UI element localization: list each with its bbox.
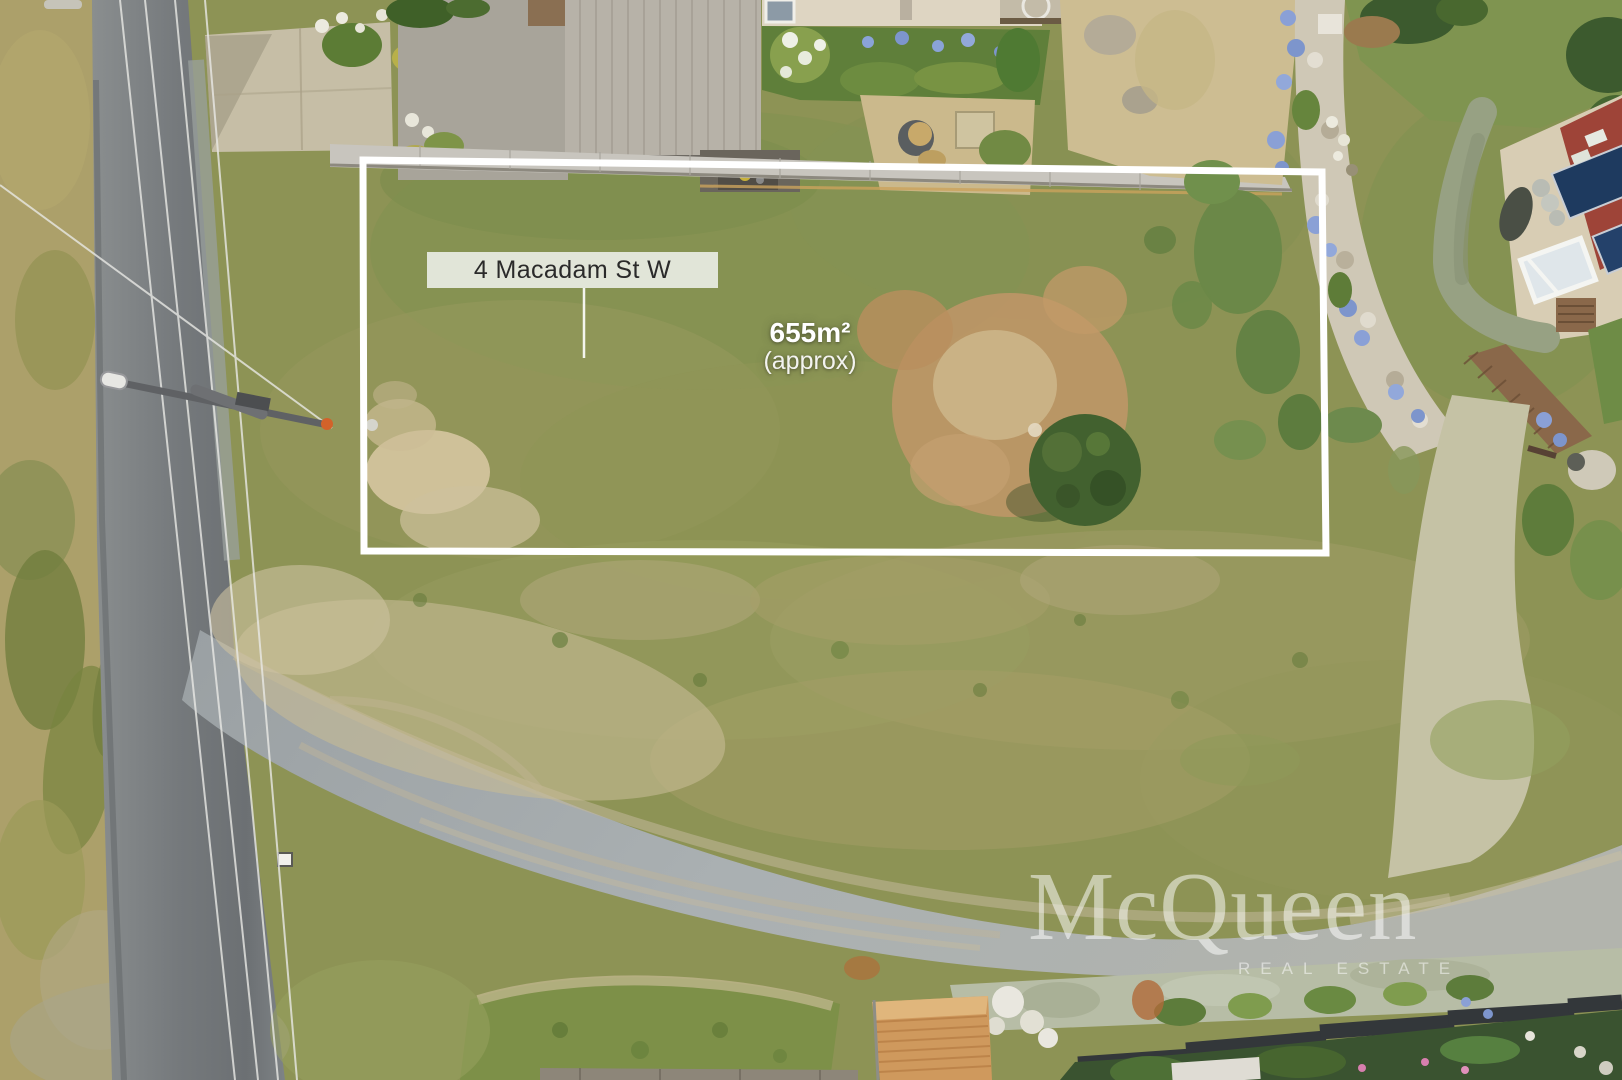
- bottom-roof-strip: [540, 1068, 858, 1080]
- area-value: 655m²: [720, 318, 900, 348]
- property-address-text: 4 Macadam St W: [474, 256, 671, 285]
- bottom-grass-hump: [270, 960, 840, 1080]
- aerial-photo: 4 Macadam St W 655m² (approx) McQueen RE…: [0, 0, 1622, 1080]
- utility-pit: [278, 853, 292, 866]
- aerial-photo-art: [0, 0, 1622, 1080]
- property-address-label: 4 Macadam St W: [427, 252, 718, 288]
- area-qualifier: (approx): [720, 348, 900, 375]
- area-annotation: 655m² (approx): [720, 318, 900, 375]
- brick-path: [844, 956, 992, 1080]
- road: [92, 0, 285, 1080]
